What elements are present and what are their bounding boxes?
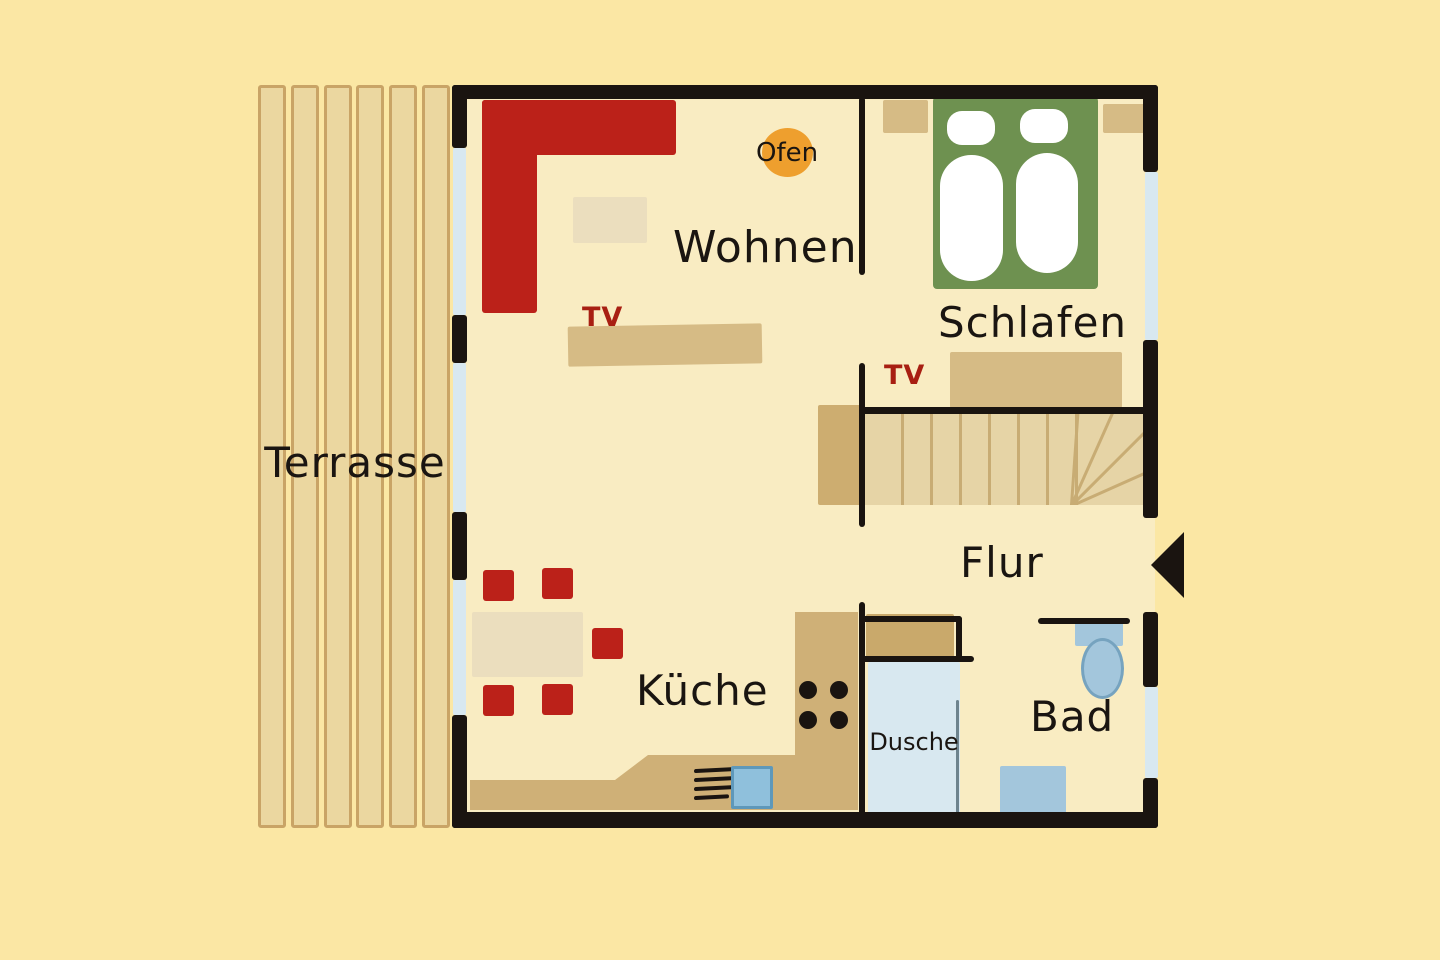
wall-bath-top-left [862, 616, 962, 622]
stair-winder-line [1070, 417, 1150, 505]
kitchen-sink [731, 766, 773, 809]
wall-bedroom-stairs [859, 407, 1150, 414]
wall-left-segment [452, 85, 467, 148]
wall-bath-top-right [1038, 618, 1130, 624]
room-label-terrasse: Terrasse [260, 438, 450, 487]
wall-living-stairs [859, 363, 865, 527]
room-label-wohnen: Wohnen [673, 222, 858, 273]
shower-screen [956, 700, 959, 816]
stairs [865, 412, 1150, 505]
room-label-schlafen: Schlafen [938, 298, 1127, 347]
room-label-kueche: Küche [636, 666, 769, 715]
wall-above-shower [862, 656, 974, 662]
wall-living-bedroom-upper [859, 97, 865, 275]
toilet-bowl [1081, 638, 1124, 699]
wall-left-segment [452, 715, 467, 828]
tv-sideboard-bedroom [950, 352, 1122, 408]
wall-right-segment [1143, 612, 1158, 687]
window-terrace-middle [453, 363, 466, 512]
tv-label-living: TV [582, 302, 623, 333]
window-terrace-living [453, 148, 466, 315]
bathroom-sink-unit [1000, 766, 1066, 818]
wall-left-segment [452, 315, 467, 363]
nightstand-left [883, 100, 928, 133]
room-label-dusche: Dusche [868, 728, 960, 756]
stairs-landing [818, 405, 864, 505]
room-label-bad: Bad [1030, 692, 1114, 741]
coffee-table [573, 197, 647, 243]
stair-treads [875, 412, 1081, 505]
window-bedroom [1145, 172, 1158, 340]
mattress [940, 155, 1003, 281]
entrance-arrow-icon [1151, 532, 1184, 598]
dining-chair [542, 568, 573, 599]
dining-chair [592, 628, 623, 659]
nightstand-right [1103, 104, 1148, 133]
stove-burners-icon [799, 681, 851, 731]
burner-icon [830, 711, 848, 729]
burner-icon [830, 681, 848, 699]
wall-right-segment [1143, 778, 1158, 828]
wall-kitchen-bath [859, 602, 865, 822]
wall-top [452, 85, 1158, 99]
wall-left-segment [452, 512, 467, 580]
dining-chair [542, 684, 573, 715]
dining-table [472, 612, 583, 677]
pillow [1020, 109, 1068, 143]
dining-chair [483, 570, 514, 601]
pillow [947, 111, 995, 145]
wall-bottom [452, 812, 1158, 828]
floor-plan: Terrasse TV Ofen Wohnen Schlafen TV Flur… [0, 0, 1440, 960]
mattress [1016, 153, 1078, 273]
burner-icon [799, 681, 817, 699]
tv-label-bedroom: TV [884, 360, 925, 391]
burner-icon [799, 711, 817, 729]
dining-chair [483, 685, 514, 716]
window-bathroom [1145, 687, 1158, 778]
wall-right-segment [1143, 340, 1158, 518]
double-bed [933, 97, 1098, 289]
wall-right-segment [1143, 85, 1158, 172]
sofa-vertical [482, 100, 537, 313]
room-label-flur: Flur [960, 538, 1044, 587]
window-terrace-kitchen [453, 580, 466, 715]
oven-label: Ofen [756, 138, 818, 168]
